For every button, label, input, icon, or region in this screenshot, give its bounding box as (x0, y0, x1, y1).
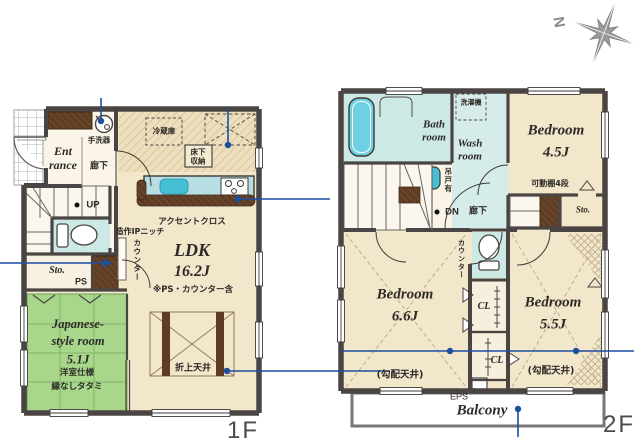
japanese-room-label2: style room (51, 335, 104, 348)
closet2-label: CL (491, 356, 504, 366)
niche-counter (118, 238, 126, 280)
entrance-label2: rance (49, 159, 77, 171)
bathroom-label: Bath (423, 120, 445, 131)
shelf-note-label: 可動棚4段 (531, 180, 569, 188)
kitchen-sink-icon (160, 179, 188, 194)
bathroom-label2: room (422, 133, 446, 144)
handwash-label: 手洗器 (88, 136, 111, 144)
japanese-room-size: 5.1J (67, 353, 90, 366)
sloped-ceiling-label-1: (勾配天井) (377, 370, 424, 380)
bedroom1-label: Bedroom (528, 124, 585, 139)
storage-2f-label: Sto. (576, 206, 590, 215)
japanese-room-label: Japanese- (52, 318, 104, 331)
floor2-label: 2F (603, 413, 635, 437)
toilet-icon-2f (479, 235, 499, 270)
hallway-1f-label: 廊下 (90, 163, 108, 172)
refrigerator-label: 冷蔵庫 (153, 127, 176, 135)
bedroom3-label: Bedroom (525, 296, 582, 311)
coffered-ceiling-label: 折上天井 (173, 365, 213, 374)
toilet-icon-1f (57, 224, 97, 247)
closet1-label: CL (478, 302, 491, 312)
washroom-label: Wash (458, 139, 483, 150)
japanese-room-note2: 縁なしタタミ (51, 383, 102, 392)
bedroom3-size: 5.5J (540, 318, 566, 333)
compass-rose-icon (576, 5, 632, 61)
balcony-label: Balcony (457, 404, 508, 419)
counter-2f-label: カウンター (458, 239, 465, 279)
ps-label: PS (75, 278, 87, 287)
counter-1f-label: カウンター (133, 239, 141, 282)
storage-1f-label: Sto. (49, 266, 65, 276)
underfloor-label: 床下 (191, 148, 206, 156)
floorplan-image: Ent rance 廊下 手洗器 UP Sto. PS 造作IPニッチ カウンタ… (0, 0, 640, 448)
underfloor-label2: 収納 (191, 157, 206, 165)
washer-label: 洗濯機 (461, 100, 482, 107)
dn-marker-dot (435, 210, 440, 215)
floor1-label: 1F (227, 419, 259, 443)
hallway-2f-label: 廊下 (469, 208, 487, 217)
entrance-label: Ent (54, 145, 72, 157)
entrance-porch (14, 110, 46, 140)
bedroom1-size: 4.5J (543, 146, 569, 161)
shoe-cabinet (48, 112, 92, 129)
eps-label: EPS (450, 393, 468, 402)
dn-label: DN (445, 207, 459, 217)
closet-cabinet (540, 195, 560, 228)
up-label: UP (86, 200, 99, 210)
hanging-door-label: 吊戸有 (444, 167, 452, 193)
up-marker-dot (75, 203, 80, 208)
bedroom2-size: 6.6J (392, 310, 418, 325)
accent-cloth-label: アクセントクロス (158, 218, 226, 227)
niche-label: 造作IPニッチ (116, 228, 165, 236)
japanese-room-note1: 洋室仕様 (60, 369, 94, 378)
washroom-label2: room (458, 152, 482, 163)
stove-icon (221, 178, 248, 195)
ldk-note-label: ※PS・カウンター含 (153, 286, 233, 295)
ldk-size-label: 16.2J (174, 264, 210, 280)
bedroom2-label: Bedroom (377, 288, 434, 303)
ldk-room-label: LDK (174, 241, 210, 259)
sloped-ceiling-label-2: (勾配天井) (528, 366, 575, 376)
handwash-basin-icon (96, 116, 113, 133)
stairs-down (344, 163, 432, 230)
